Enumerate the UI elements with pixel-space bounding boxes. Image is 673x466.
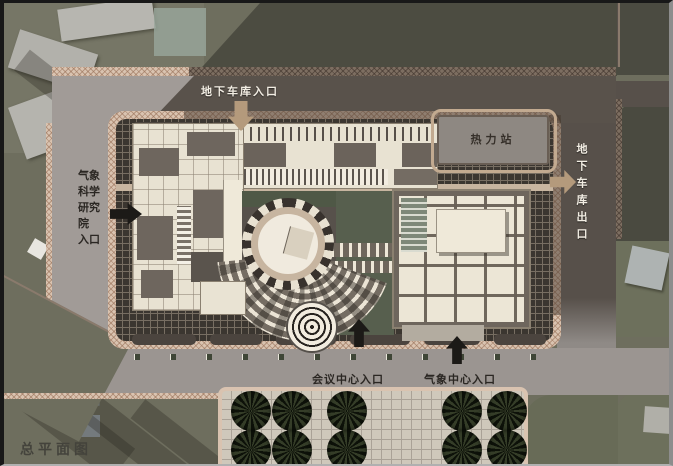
roof-panel bbox=[238, 143, 286, 167]
sidewalk-south bbox=[4, 393, 222, 399]
spiral-mound bbox=[288, 303, 336, 351]
cast-shadow-lawn bbox=[194, 3, 617, 76]
context-block-east-shaded bbox=[616, 103, 673, 241]
heating-station-label: 热力站 bbox=[471, 134, 516, 147]
roof-panel bbox=[334, 143, 376, 167]
street-tree bbox=[494, 354, 500, 360]
context-block-south bbox=[524, 395, 618, 466]
garage-entrance-label: 地下车库入口 bbox=[201, 86, 279, 99]
street-tree bbox=[350, 354, 356, 360]
tree bbox=[272, 430, 312, 466]
sidewalk-east bbox=[616, 99, 622, 239]
tree bbox=[442, 430, 482, 466]
tree bbox=[231, 430, 271, 466]
research-institute-label-line: 入口 bbox=[78, 234, 100, 246]
building-east bbox=[392, 189, 531, 329]
street-tree bbox=[170, 354, 176, 360]
research-institute-label-line: 研究 bbox=[78, 202, 100, 214]
roof-volume bbox=[436, 209, 506, 253]
street-tree bbox=[206, 354, 212, 360]
heating-station-building: 热力站 bbox=[437, 115, 549, 165]
met-center-entrance-label: 气象中心入口 bbox=[424, 374, 496, 387]
tree bbox=[327, 430, 367, 466]
annex-block bbox=[200, 281, 246, 315]
tree bbox=[487, 430, 527, 466]
context-building-block bbox=[643, 406, 671, 434]
research-institute-label: 气象 科学 研究 院 入口 bbox=[78, 168, 114, 248]
context-building-block bbox=[624, 245, 669, 290]
street-tree bbox=[242, 354, 248, 360]
street-tree bbox=[278, 354, 284, 360]
skylight-strip bbox=[401, 198, 427, 252]
roof-panel bbox=[187, 132, 235, 156]
research-institute-label-line: 院 bbox=[78, 218, 89, 230]
street-tree bbox=[134, 354, 140, 360]
street-tree bbox=[422, 354, 428, 360]
tree bbox=[487, 391, 527, 431]
road-northeast bbox=[616, 81, 673, 107]
cast-shadow-sidewalk bbox=[189, 67, 616, 76]
tree bbox=[231, 391, 271, 431]
roof-panel bbox=[394, 169, 437, 185]
context-block-northeast bbox=[616, 3, 673, 75]
conference-entrance-label: 会议中心入口 bbox=[312, 374, 384, 387]
site-plan-rendering: 热力站 地下车库入口 地下车库出口 气象 科学 研究 院 入口 会议中心入口 气… bbox=[0, 0, 673, 466]
street-tree bbox=[314, 354, 320, 360]
street-tree bbox=[530, 354, 536, 360]
street-tree bbox=[386, 354, 392, 360]
tree bbox=[327, 391, 367, 431]
site-wall-segment bbox=[132, 334, 196, 345]
tree bbox=[442, 391, 482, 431]
plan-caption: 总平面图 bbox=[20, 439, 92, 459]
research-institute-label-line: 气象 bbox=[78, 170, 100, 182]
roof-panel bbox=[139, 148, 179, 176]
research-institute-label-line: 科学 bbox=[78, 186, 100, 198]
tree bbox=[272, 391, 312, 431]
garage-exit-label: 地下车库出口 bbox=[574, 143, 587, 245]
site-wall-segment bbox=[494, 334, 546, 345]
roof-panel bbox=[141, 270, 173, 298]
context-building-block bbox=[154, 8, 206, 56]
site-wall-segment bbox=[210, 334, 262, 345]
entry-plaza bbox=[402, 325, 484, 341]
skylight-strip bbox=[177, 206, 191, 264]
sidewalk-west bbox=[46, 123, 52, 303]
roof-panel bbox=[137, 216, 173, 260]
